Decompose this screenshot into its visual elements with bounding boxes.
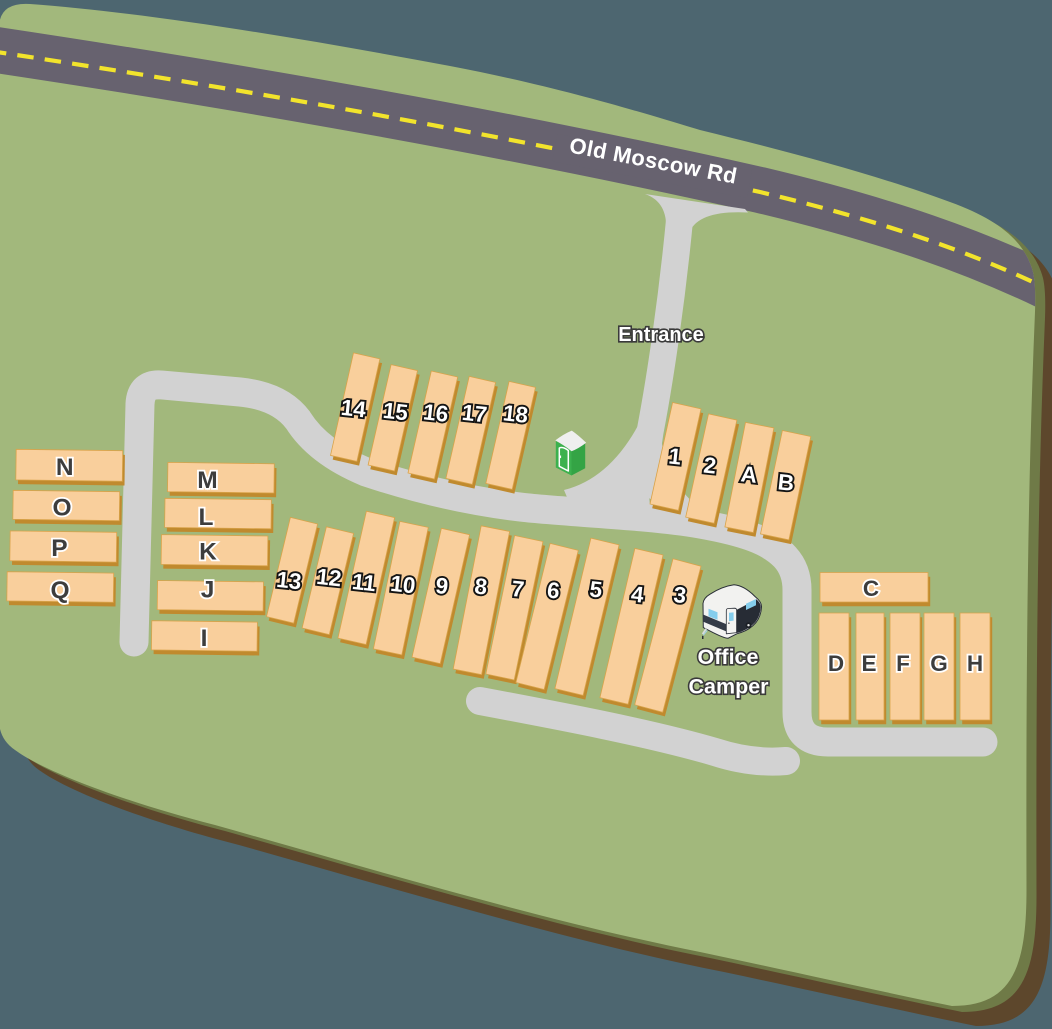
svg-text:16: 16 [422, 399, 450, 426]
svg-text:17: 17 [461, 400, 489, 427]
svg-text:K: K [199, 538, 217, 565]
svg-text:8: 8 [473, 574, 488, 600]
svg-text:P: P [51, 535, 67, 562]
svg-text:Entrance: Entrance [618, 324, 704, 346]
svg-text:C: C [863, 576, 879, 601]
svg-text:Q: Q [50, 577, 69, 604]
svg-text:12: 12 [315, 564, 343, 591]
svg-text:G: G [930, 651, 948, 676]
svg-text:L: L [199, 504, 214, 531]
svg-text:2: 2 [702, 453, 717, 479]
svg-text:M: M [197, 467, 217, 494]
svg-text:1: 1 [667, 444, 682, 470]
svg-text:14: 14 [340, 395, 368, 423]
svg-text:O: O [52, 495, 71, 522]
svg-text:15: 15 [382, 398, 410, 425]
svg-text:Office: Office [698, 645, 759, 669]
svg-text:11: 11 [351, 569, 377, 596]
svg-text:E: E [861, 651, 876, 676]
svg-text:9: 9 [434, 573, 449, 599]
svg-text:7: 7 [510, 576, 525, 602]
svg-text:5: 5 [588, 577, 603, 603]
svg-text:3: 3 [672, 582, 687, 608]
svg-text:A: A [740, 461, 759, 488]
svg-text:18: 18 [502, 400, 530, 427]
svg-text:J: J [201, 576, 215, 603]
svg-text:6: 6 [546, 578, 561, 604]
svg-text:B: B [777, 469, 796, 496]
svg-text:N: N [56, 454, 74, 481]
svg-text:10: 10 [389, 571, 417, 598]
svg-text:I: I [201, 625, 208, 652]
svg-text:13: 13 [275, 567, 303, 594]
svg-text:D: D [828, 651, 844, 676]
svg-text:F: F [896, 651, 910, 676]
svg-text:Camper: Camper [688, 675, 769, 699]
svg-text:H: H [967, 651, 983, 676]
